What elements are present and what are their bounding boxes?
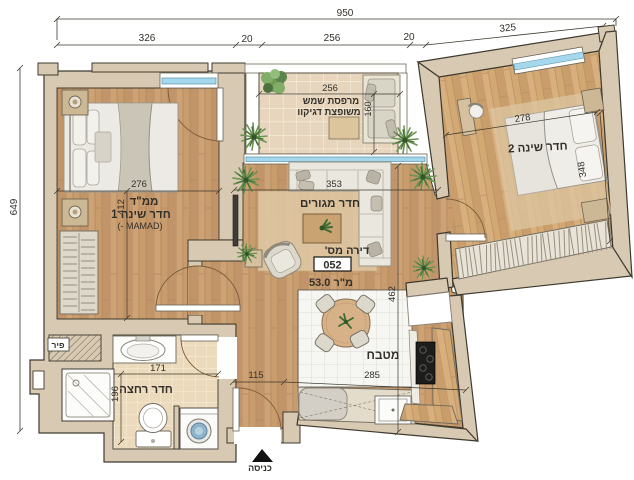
svg-text:326: 326 (139, 33, 156, 44)
svg-text:(- MAMAD): (- MAMAD) (118, 221, 163, 231)
svg-text:353: 353 (326, 179, 342, 190)
svg-text:53.0 מ"ר: 53.0 מ"ר (309, 277, 353, 289)
svg-text:מטבח: מטבח (366, 348, 399, 362)
svg-text:950: 950 (337, 8, 354, 19)
svg-text:278: 278 (514, 112, 531, 125)
svg-text:חדר שינה 1: חדר שינה 1 (111, 209, 171, 221)
svg-text:649: 649 (9, 198, 20, 215)
svg-text:276: 276 (131, 179, 147, 190)
svg-text:256: 256 (322, 83, 338, 94)
svg-text:כניסה: כניסה (248, 463, 272, 473)
svg-text:160: 160 (363, 101, 373, 116)
svg-text:חדר רחצה: חדר רחצה (119, 384, 173, 396)
svg-text:115: 115 (248, 370, 263, 381)
svg-text:פיר: פיר (51, 340, 64, 350)
svg-text:171: 171 (150, 363, 166, 374)
svg-text:20: 20 (241, 34, 253, 45)
svg-text:חדר מגורים: חדר מגורים (300, 198, 360, 210)
svg-text:דירה מס': דירה מס' (325, 245, 370, 257)
svg-text:325: 325 (499, 22, 517, 35)
svg-text:משופצת דגיקוו: משופצת דגיקוו (297, 107, 360, 118)
svg-text:285: 285 (364, 370, 380, 381)
svg-text:20: 20 (403, 32, 415, 43)
svg-text:ממ"ד: ממ"ד (130, 196, 159, 208)
svg-text:מרפסת שמש: מרפסת שמש (303, 96, 359, 107)
svg-text:052: 052 (323, 260, 341, 272)
svg-text:256: 256 (324, 33, 341, 44)
svg-text:462: 462 (387, 286, 398, 302)
